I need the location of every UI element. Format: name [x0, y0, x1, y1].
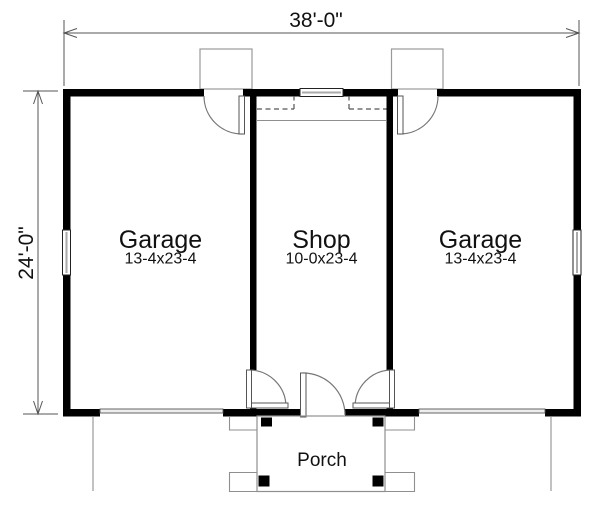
- room-size-garage-left: 13-4x23-4: [124, 251, 196, 268]
- dimension-left-label: 24'-0": [15, 226, 38, 280]
- garage-door-right: [419, 409, 545, 413]
- door-leaf: [301, 373, 307, 417]
- interior-wall-left: [250, 96, 257, 370]
- room-size-garage-right: 13-4x23-4: [444, 251, 516, 268]
- garage-door-left: [100, 409, 223, 413]
- wall-segment: [63, 89, 204, 97]
- room-size-shop: 10-0x23-4: [285, 251, 357, 268]
- wall-segment: [545, 409, 581, 417]
- stoop-left: [200, 49, 252, 89]
- wall-segment: [223, 409, 302, 417]
- wall-segment: [574, 89, 582, 230]
- door-leaf: [247, 370, 252, 408]
- wall-segment: [63, 275, 71, 417]
- wall-segment: [574, 275, 582, 417]
- dimension-top-label: 38'-0": [289, 9, 343, 32]
- door-leaf: [390, 370, 395, 408]
- porch-post: [373, 476, 384, 487]
- door-closed-line: [353, 403, 393, 408]
- wall-segment: [243, 89, 300, 97]
- wall-segment: [345, 409, 419, 417]
- wall-segment: [343, 89, 398, 97]
- porch-post: [261, 418, 272, 427]
- porch-post: [259, 476, 270, 487]
- door-leaf: [398, 96, 404, 134]
- room-labels: Garage 13-4x23-4 Shop 10-0x23-4 Garage 1…: [119, 226, 522, 268]
- wall-segment: [63, 89, 71, 230]
- floor-plan: 38'-0" 24'-0": [0, 0, 600, 516]
- stoop-right: [392, 49, 444, 89]
- porch-post: [373, 418, 384, 427]
- wall-segment: [63, 409, 100, 417]
- interior-wall-right: [387, 96, 394, 370]
- wall-segment: [437, 89, 581, 97]
- door-closed-line: [247, 403, 288, 408]
- door-leaf: [239, 96, 245, 134]
- porch-label: Porch: [297, 450, 347, 471]
